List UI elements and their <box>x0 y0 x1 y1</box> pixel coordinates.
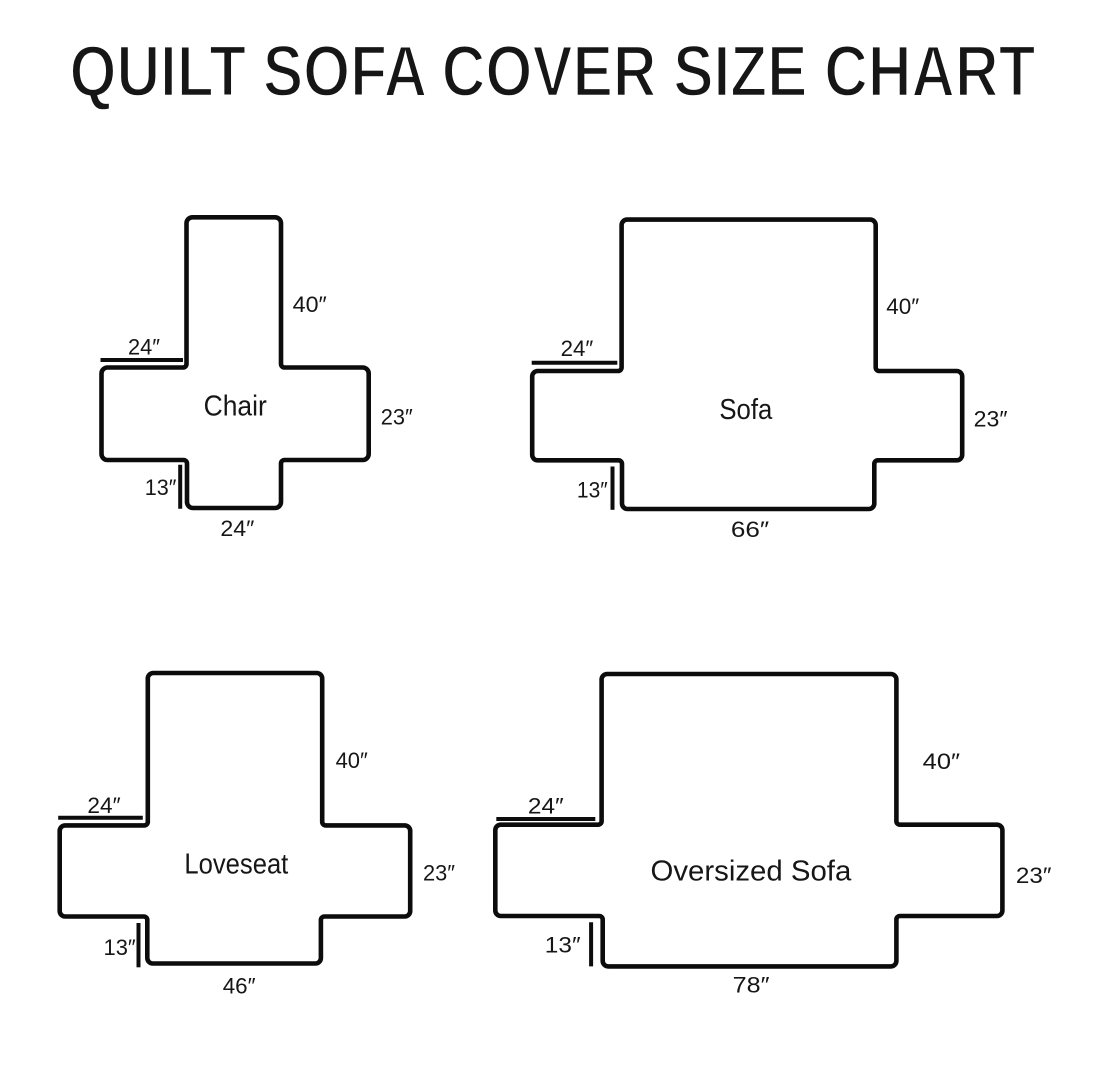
svg-text:Oversized Sofa: Oversized Sofa <box>651 856 852 888</box>
svg-text:13″: 13″ <box>545 933 581 958</box>
svg-text:40″: 40″ <box>336 748 368 773</box>
svg-text:46″: 46″ <box>223 974 256 999</box>
svg-text:23″: 23″ <box>974 407 1008 432</box>
svg-text:Loveseat: Loveseat <box>184 849 288 881</box>
svg-text:40″: 40″ <box>923 749 960 774</box>
svg-text:13″: 13″ <box>104 935 136 960</box>
svg-text:40″: 40″ <box>886 294 919 319</box>
svg-text:24″: 24″ <box>220 516 254 541</box>
svg-text:24″: 24″ <box>128 335 160 360</box>
svg-text:24″: 24″ <box>87 793 120 818</box>
svg-text:66″: 66″ <box>731 517 769 542</box>
svg-text:Chair: Chair <box>204 391 268 423</box>
svg-text:Sofa: Sofa <box>719 394 772 426</box>
svg-text:13″: 13″ <box>577 477 608 502</box>
svg-text:23″: 23″ <box>381 404 413 429</box>
svg-text:13″: 13″ <box>145 475 177 500</box>
svg-text:24″: 24″ <box>561 336 594 361</box>
svg-text:40″: 40″ <box>293 292 327 317</box>
svg-text:23″: 23″ <box>423 861 455 886</box>
svg-text:24″: 24″ <box>528 794 564 819</box>
svg-text:78″: 78″ <box>733 972 770 997</box>
svg-text:23″: 23″ <box>1016 863 1052 888</box>
svg-text:QUILT SOFA COVER SIZE CHART: QUILT SOFA COVER SIZE CHART <box>70 31 1036 112</box>
